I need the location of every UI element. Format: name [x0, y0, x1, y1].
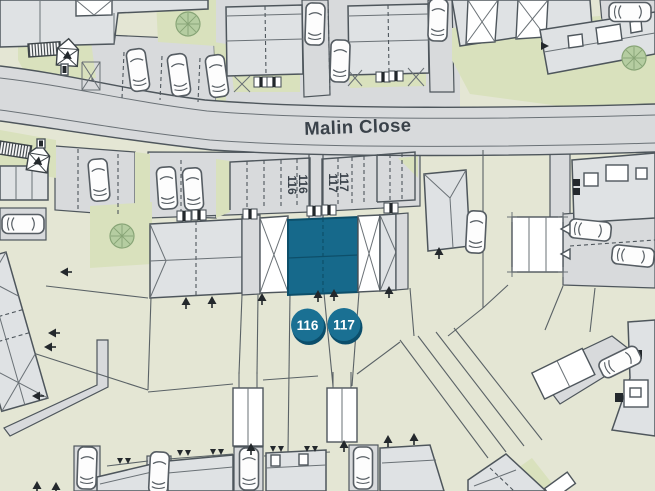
bay-label-116-b: 116	[296, 174, 310, 194]
building-right-edge	[572, 153, 655, 223]
car-icon	[240, 448, 259, 490]
tree-icon	[110, 224, 134, 248]
driveway-left-of-plot	[242, 215, 260, 295]
car-icon	[156, 166, 178, 209]
building-block-2	[348, 4, 429, 75]
street-label: Malin Close	[304, 114, 412, 139]
car-icon	[330, 40, 350, 83]
building-block-1	[226, 5, 303, 76]
car-icon	[465, 211, 486, 254]
tree-icon	[176, 12, 200, 36]
car-icon	[354, 447, 373, 489]
car-icon	[428, 0, 448, 41]
car-icon	[2, 215, 44, 234]
site-plan-map: 116 116 117 117	[0, 0, 655, 491]
building-house-east	[424, 170, 470, 251]
car-icon	[611, 244, 655, 267]
car-icon	[568, 218, 612, 241]
tree-icon	[622, 46, 646, 70]
car-icon	[148, 452, 169, 491]
plot-marker-116-label: 116	[297, 318, 319, 333]
car-icon	[609, 3, 651, 22]
car-icon	[182, 167, 204, 210]
highlighted-building-116-117[interactable]	[260, 214, 396, 295]
car-icon	[88, 158, 111, 201]
car-icon	[305, 3, 325, 46]
driveway-right-of-plot	[396, 213, 408, 290]
bench-icon	[28, 42, 61, 57]
plot-marker-117-label: 117	[333, 317, 355, 332]
building-row-left-block	[150, 219, 242, 298]
building-garage-block	[507, 212, 568, 277]
site-plan-page: 116 116 117 117	[0, 0, 655, 491]
bay-label-117-b: 117	[337, 172, 351, 192]
car-icon	[77, 447, 97, 490]
